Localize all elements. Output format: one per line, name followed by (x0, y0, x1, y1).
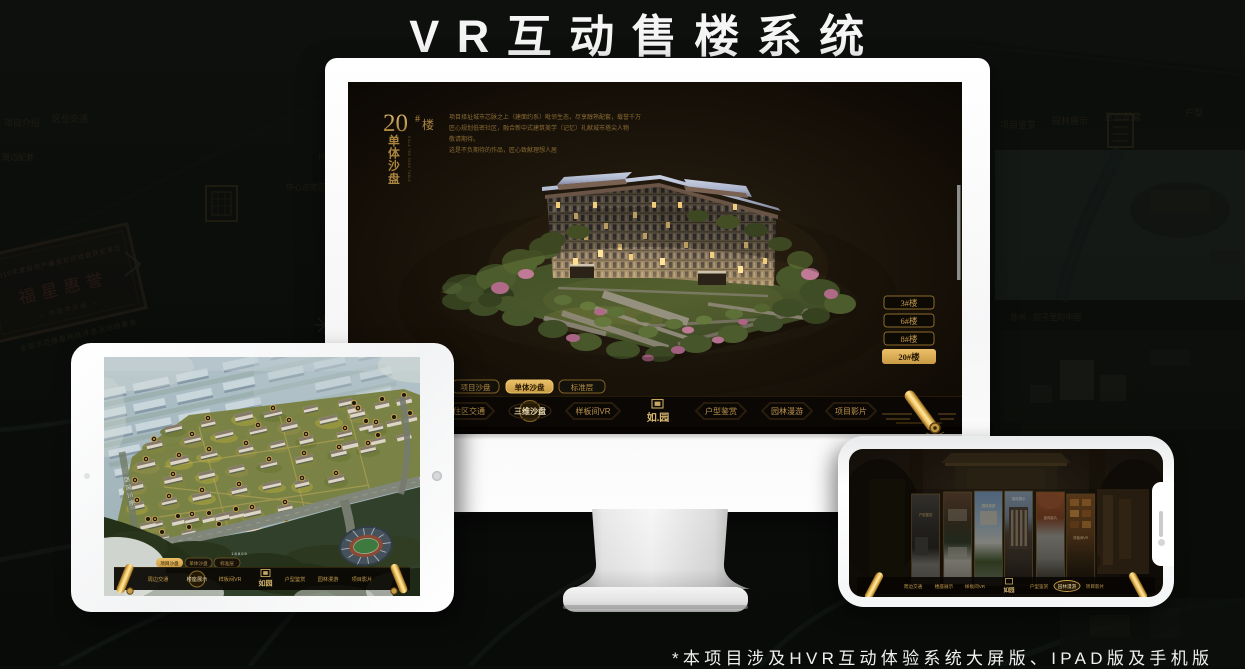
svg-text:项目沙盘: 项目沙盘 (461, 382, 491, 392)
svg-text:项目鉴赏: 项目鉴赏 (1000, 119, 1036, 130)
svg-text:样板间VR: 样板间VR (219, 575, 242, 583)
svg-text:样板间VR: 样板间VR (965, 583, 986, 590)
svg-text:标准层: 标准层 (571, 382, 594, 392)
svg-text:项目择址城市芯脉之上（建面约系）毗邻生态，尽享醇熟配套，载誉: 项目择址城市芯脉之上（建面约系）毗邻生态，尽享醇熟配套，载誉千万 (449, 113, 641, 121)
svg-text:单体沙盘: 单体沙盘 (515, 382, 545, 392)
svg-text:#: # (415, 114, 420, 125)
svg-text:园林漫游: 园林漫游 (1058, 583, 1077, 590)
svg-text:单体沙盘: 单体沙盘 (388, 134, 400, 186)
svg-text:园林漫游: 园林漫游 (318, 575, 339, 583)
svg-text:6#楼: 6#楼 (900, 316, 918, 326)
svg-text:3#楼: 3#楼 (900, 298, 918, 308)
svg-text:中心示范区: 中心示范区 (286, 182, 326, 192)
svg-text:楼座展示: 楼座展示 (187, 575, 208, 583)
svg-text:楼座展示: 楼座展示 (935, 583, 954, 590)
svg-text:如园: 如园 (1003, 586, 1015, 594)
svg-text:楼: 楼 (422, 117, 434, 132)
svg-text:苏州 · 院子里的中国: 苏州 · 院子里的中国 (1010, 312, 1081, 322)
svg-text:区位交通: 区位交通 (52, 113, 88, 124)
svg-text:单体沙盘: 单体沙盘 (189, 560, 208, 567)
svg-text:户型: 户型 (1185, 107, 1203, 118)
svg-text:样板间VR: 样板间VR (575, 406, 610, 416)
svg-text:20: 20 (383, 110, 408, 137)
svg-text:VILLA THE SAND TABLE: VILLA THE SAND TABLE (407, 136, 411, 182)
svg-text:园林展示: 园林展示 (1052, 115, 1088, 126)
svg-text:户型鉴赏: 户型鉴赏 (285, 575, 306, 583)
svg-text:户型鉴赏: 户型鉴赏 (1030, 583, 1049, 590)
svg-text:这是不负期待的作品，匠心致献理想人居: 这是不负期待的作品，匠心致献理想人居 (449, 146, 557, 154)
svg-text:项目沙盘: 项目沙盘 (160, 560, 179, 567)
svg-text:项目介绍: 项目介绍 (4, 117, 40, 128)
svg-text:8#楼: 8#楼 (900, 334, 918, 344)
svg-text:项目影片: 项目影片 (1086, 583, 1105, 590)
svg-text:敬请期待。: 敬请期待。 (449, 135, 479, 143)
svg-text:户型鉴赏: 户型鉴赏 (705, 406, 737, 416)
svg-text:如园: 如园 (259, 579, 273, 588)
svg-text:如.园: 如.园 (647, 411, 670, 424)
svg-text:周边交通: 周边交通 (904, 583, 923, 590)
svg-text:20#楼: 20#楼 (898, 352, 920, 362)
svg-text:标准层: 标准层 (220, 560, 234, 567)
svg-text:匠心规划低密社区，融合新中式建筑美学（记忆）礼献城市塔尖人物: 匠心规划低密社区，融合新中式建筑美学（记忆）礼献城市塔尖人物 (449, 124, 629, 132)
svg-text:周边交通: 周边交通 (148, 575, 170, 583)
svg-text:项目影片: 项目影片 (835, 406, 867, 416)
svg-text:1 8 8 0 5: 1 8 8 0 5 (231, 551, 247, 556)
svg-text:三维沙盘: 三维沙盘 (514, 406, 546, 416)
svg-text:园林漫游: 园林漫游 (771, 406, 803, 416)
svg-text:项目影片: 项目影片 (352, 575, 373, 583)
svg-text:住区交通: 住区交通 (453, 406, 485, 416)
svg-text:周边配套: 周边配套 (2, 152, 34, 162)
